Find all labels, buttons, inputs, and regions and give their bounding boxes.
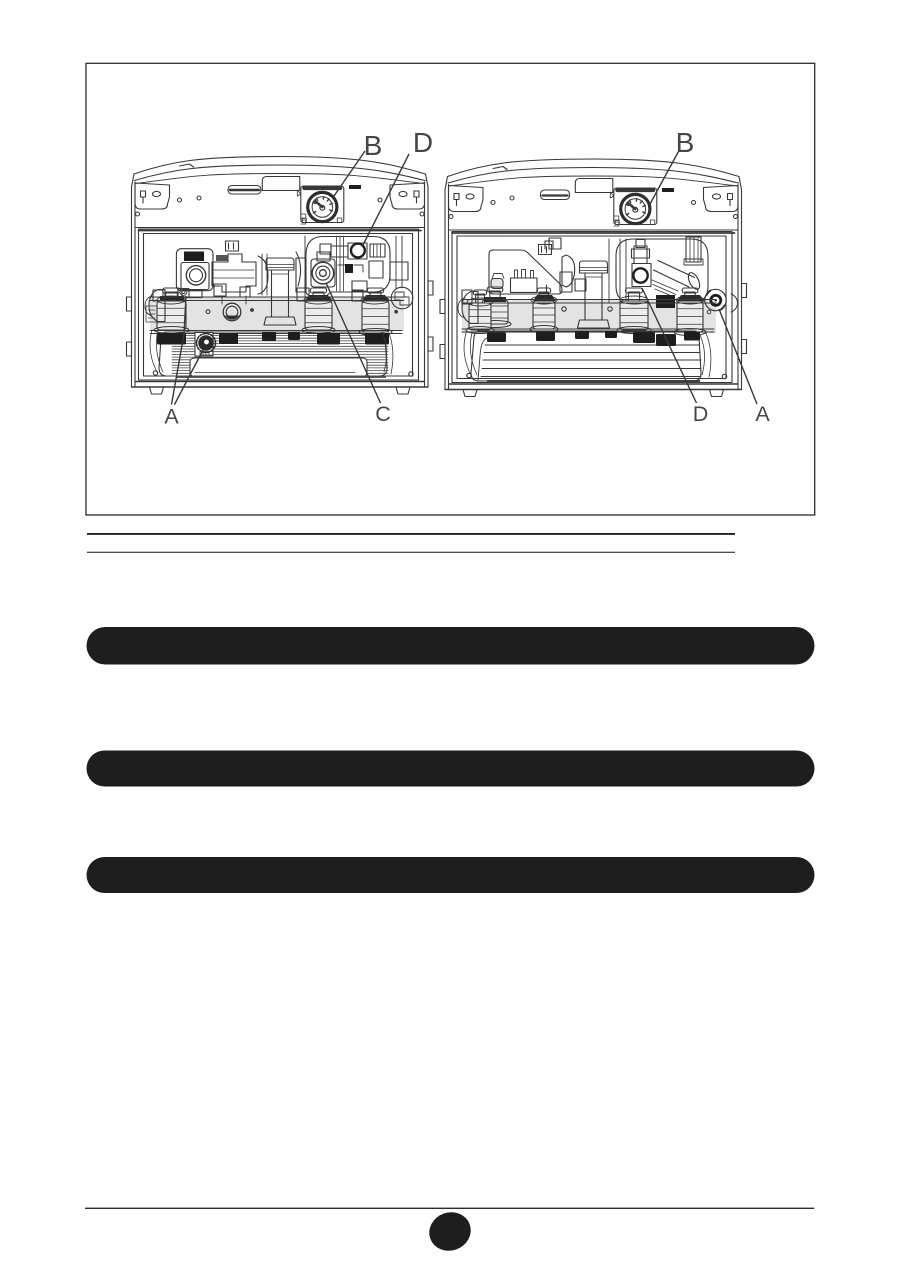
svg-text:D: D <box>693 402 709 426</box>
svg-text:D: D <box>413 127 433 158</box>
svg-text:C: C <box>375 402 391 426</box>
svg-text:A: A <box>755 402 770 426</box>
svg-text:A: A <box>164 405 179 429</box>
svg-text:B: B <box>364 130 383 161</box>
svg-text:B: B <box>676 127 695 158</box>
